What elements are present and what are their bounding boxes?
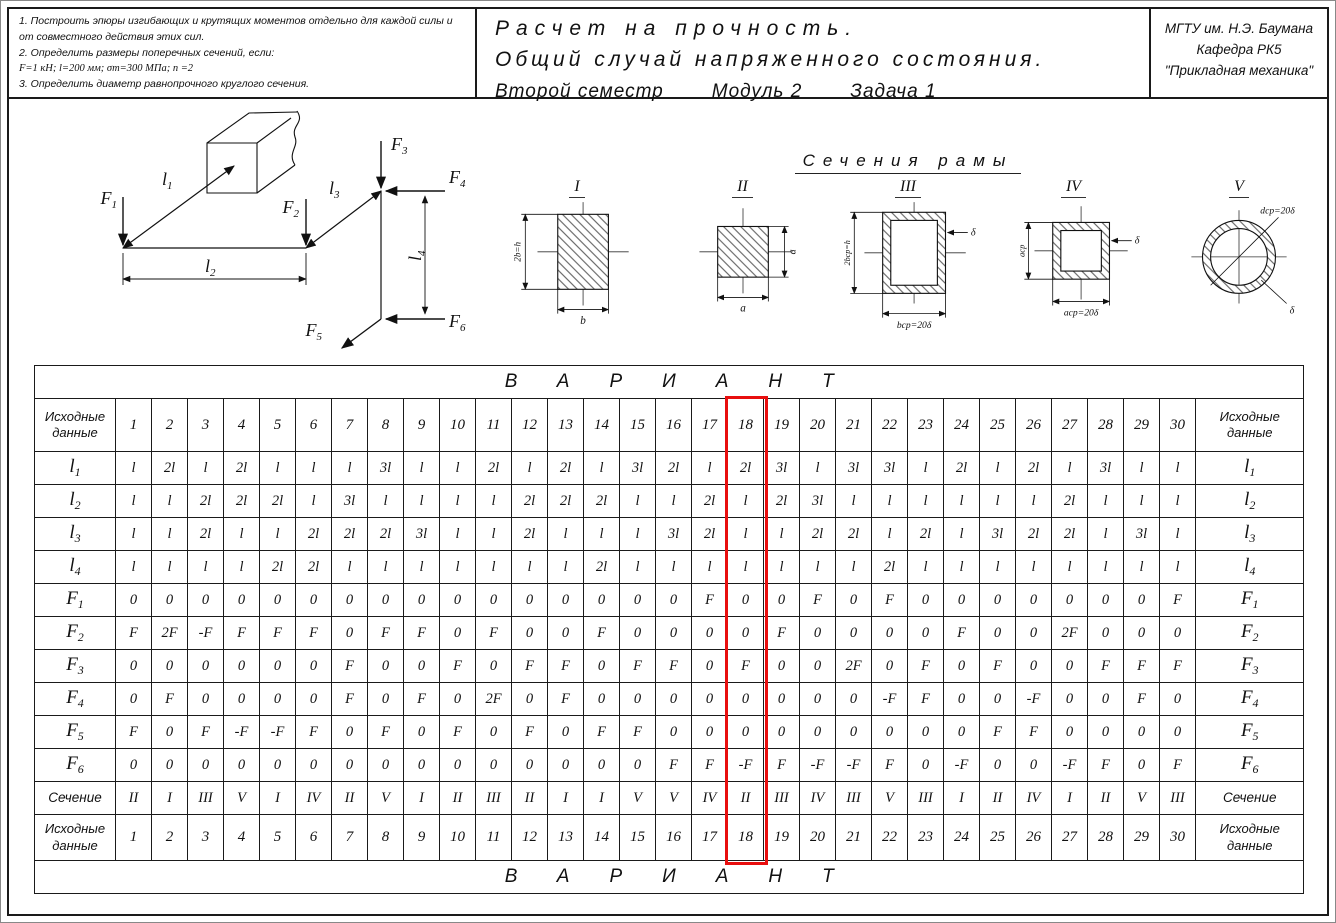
value-cell: II [440,782,476,815]
value-cell: 0 [548,749,584,782]
value-cell: F [1124,683,1160,716]
row-label-cell: l4 [1196,551,1304,584]
variant-number-cell: 20 [800,815,836,861]
value-cell: V [620,782,656,815]
dim-wall-5: δ [1290,306,1295,317]
value-cell: 0 [224,650,260,683]
value-cell: 2l [944,452,980,485]
value-cell: l [296,485,332,518]
value-cell: -F [728,749,764,782]
value-cell: I [1052,782,1088,815]
value-cell: IV [800,782,836,815]
value-cell: 0 [1160,683,1196,716]
row-label-cell: F4 [35,683,116,716]
value-cell: 2l [296,518,332,551]
value-cell: F [332,683,368,716]
value-cell: F [440,650,476,683]
value-cell: 2l [584,485,620,518]
row-label-cell: F1 [35,584,116,617]
row-label-cell: l2 [1196,485,1304,518]
dim-left-3: 2bср=h [843,240,852,265]
value-cell: F [440,716,476,749]
variant-table-wrap: ВАРИАНТИсходные данные123456789101112131… [34,365,1303,894]
value-cell: 0 [584,683,620,716]
value-cell: 2l [296,551,332,584]
value-cell: 0 [188,584,224,617]
value-cell: l [1160,518,1196,551]
variant-number-cell: 6 [296,815,332,861]
value-cell: 0 [296,584,332,617]
value-cell: 0 [800,683,836,716]
value-cell: l [404,452,440,485]
force-arrow-f5 [342,319,381,348]
value-cell: 2l [1052,485,1088,518]
value-cell: 3l [872,452,908,485]
value-cell: F [404,617,440,650]
value-cell: 0 [1052,716,1088,749]
subtitle-module: Модуль 2 [712,81,803,103]
dim-left-4: aср [1016,244,1026,257]
task-list: 1. Построить эпюры изгибающих и крутящих… [9,9,477,97]
value-cell: 0 [260,584,296,617]
value-cell: I [260,782,296,815]
variant-number-cell: 5 [260,815,296,861]
value-cell: 2l [764,485,800,518]
value-cell: 0 [260,749,296,782]
value-cell: F [692,584,728,617]
value-cell: l [332,452,368,485]
force-label-f2: F2 [282,197,300,220]
variant-number-cell: 17 [692,815,728,861]
data-row-F6: F6000000000000000FF-FF-F-FF0-F00-FF0FF6 [35,749,1304,782]
value-cell: F [1160,749,1196,782]
section-drawing-3: 2bср=h bср=20δ δ [832,200,984,332]
value-cell: 0 [512,749,548,782]
value-cell: F [1088,749,1124,782]
value-cell: 2F [152,617,188,650]
value-cell: IV [692,782,728,815]
value-cell: 0 [944,683,980,716]
variant-number-cell: 23 [908,815,944,861]
dim-wall-4: δ [1134,236,1139,247]
subtitle: Второй семестр Модуль 2 Задача 1 [495,81,1149,103]
value-cell: 0 [656,716,692,749]
value-cell: F [1160,584,1196,617]
value-cell: 0 [980,749,1016,782]
value-cell: l [548,518,584,551]
value-cell: 0 [980,617,1016,650]
value-cell: 3l [764,452,800,485]
value-cell: 0 [332,716,368,749]
value-cell: -F [836,749,872,782]
variant-number-cell: 19 [764,399,800,452]
row-label-cell: l1 [1196,452,1304,485]
variant-number-cell: 12 [512,399,548,452]
value-cell: 0 [1052,683,1088,716]
value-cell: 3l [620,452,656,485]
subtitle-semester: Второй семестр [495,81,664,103]
header-band: 1. Построить эпюры изгибающих и крутящих… [9,9,1327,99]
value-cell: 3l [368,452,404,485]
value-cell: F [872,749,908,782]
value-cell: IV [1016,782,1052,815]
value-cell: 0 [584,584,620,617]
value-cell: 0 [260,683,296,716]
length-label-l3: l3 [329,178,340,201]
value-cell: 0 [1124,584,1160,617]
value-cell: 0 [404,716,440,749]
value-cell: l [404,485,440,518]
value-cell: III [908,782,944,815]
section-numeral-5: V [1163,178,1315,198]
value-cell: 0 [728,683,764,716]
value-cell: 0 [980,584,1016,617]
value-cell: l [872,518,908,551]
value-cell: F [1088,650,1124,683]
tube-square-inner [1060,231,1101,272]
value-cell: l [1052,551,1088,584]
value-cell: 0 [224,683,260,716]
value-cell: 3l [656,518,692,551]
task-3: 3. Определить диаметр равнопрочного круг… [19,77,465,93]
row-label-cell: F2 [1196,617,1304,650]
value-cell: 0 [620,683,656,716]
variant-number-cell: 19 [764,815,800,861]
value-cell: l [116,551,152,584]
section-item-3: III 2bср=h bср=20δ [832,178,984,337]
variant-number-cell: 8 [368,815,404,861]
value-cell: 0 [800,617,836,650]
variant-number-cell: 2 [152,399,188,452]
variant-number-cell: 21 [836,815,872,861]
variant-number-cell: 4 [224,815,260,861]
variant-number-cell: 3 [188,399,224,452]
value-cell: l [692,452,728,485]
value-cell: III [764,782,800,815]
value-cell: V [224,782,260,815]
sections-block: Сечения рамы I 2b=h [501,151,1315,337]
value-cell: 0 [1088,617,1124,650]
value-cell: l [944,485,980,518]
value-cell: 0 [476,749,512,782]
value-cell: -F [188,617,224,650]
value-cell: F [656,749,692,782]
value-cell: l [656,551,692,584]
value-cell: 0 [908,716,944,749]
variant-number-cell: 7 [332,399,368,452]
value-cell: 0 [656,683,692,716]
variant-number-cell: 9 [404,399,440,452]
dim-wall-3: δ [971,228,976,239]
value-cell: l [440,551,476,584]
variant-number-cell: 30 [1160,399,1196,452]
value-cell: F [800,584,836,617]
value-cell: 2l [584,551,620,584]
value-cell: 0 [728,617,764,650]
worksheet-page: 1. Построить эпюры изгибающих и крутящих… [0,0,1336,923]
value-cell: F [116,716,152,749]
value-cell: 0 [764,584,800,617]
row-label-cell: F2 [35,617,116,650]
variant-number-cell: 1 [116,815,152,861]
value-cell: 0 [332,584,368,617]
variant-numbers-top: Исходные данные1234567891011121314151617… [35,399,1304,452]
value-cell: 0 [656,584,692,617]
value-cell: 0 [152,749,188,782]
value-cell: l [512,551,548,584]
value-cell: l [800,452,836,485]
value-cell: 0 [908,584,944,617]
value-cell: F [224,617,260,650]
tube-rect-inner [891,220,938,285]
value-cell: 3l [404,518,440,551]
value-cell: 3l [332,485,368,518]
value-cell: 0 [440,584,476,617]
value-cell: 0 [152,650,188,683]
value-cell: F [764,617,800,650]
row-label-cell: F1 [1196,584,1304,617]
variant-number-cell: 22 [872,399,908,452]
value-cell: 0 [764,683,800,716]
variant-number-cell: 28 [1088,815,1124,861]
value-cell: 0 [224,749,260,782]
corner-label-cell: Исходные данные [35,399,116,452]
variant-number-cell: 20 [800,399,836,452]
value-cell: 0 [692,617,728,650]
value-cell: 0 [728,584,764,617]
value-cell: II [116,782,152,815]
value-cell: F [692,749,728,782]
dim-bottom-1: b [580,315,586,327]
value-cell: l [152,551,188,584]
value-cell: l [1124,452,1160,485]
value-cell: II [728,782,764,815]
value-cell: II [332,782,368,815]
value-cell: l [1160,551,1196,584]
value-cell: 0 [1124,617,1160,650]
value-cell: 0 [764,716,800,749]
value-cell: 0 [800,650,836,683]
value-cell: l [1088,551,1124,584]
value-cell: 0 [1160,617,1196,650]
value-cell: 2l [260,485,296,518]
value-cell: 0 [476,650,512,683]
value-cell: l [764,518,800,551]
value-cell: 0 [476,716,512,749]
row-label-cell: F6 [1196,749,1304,782]
value-cell: 0 [872,617,908,650]
variant-number-cell: 27 [1052,815,1088,861]
variant-number-cell: 26 [1016,815,1052,861]
variant-number-cell: 2 [152,815,188,861]
value-cell: 2l [692,518,728,551]
variant-number-cell: 16 [656,815,692,861]
variant-number-cell: 14 [584,399,620,452]
value-cell: l [692,551,728,584]
variant-number-cell: 28 [1088,399,1124,452]
value-cell: F [584,617,620,650]
title-block: Расчет на прочность. Общий случай напряж… [477,9,1151,97]
value-cell: 0 [1088,716,1124,749]
length-label-l2: l2 [205,256,216,279]
value-cell: l [800,551,836,584]
title-line-1: Расчет на прочность. [495,17,1149,41]
value-cell: V [656,782,692,815]
value-cell: 2l [1016,452,1052,485]
value-cell: F [368,617,404,650]
value-cell: 2l [332,518,368,551]
value-cell: F [152,683,188,716]
value-cell: -F [800,749,836,782]
dim-bottom-3: bср=20δ [897,320,932,331]
value-cell: F [764,749,800,782]
variant-number-cell: 9 [404,815,440,861]
value-cell: l [872,485,908,518]
value-cell: 0 [584,650,620,683]
value-cell: l [908,485,944,518]
value-cell: 0 [188,749,224,782]
value-cell: 0 [620,584,656,617]
section-drawing-2: a a [667,200,819,332]
value-cell: 0 [908,749,944,782]
variant-number-cell: 13 [548,399,584,452]
variant-number-cell: 14 [584,815,620,861]
sections-title: Сечения рамы [501,151,1315,174]
value-cell: 0 [152,716,188,749]
org-university: МГТУ им. Н.Э. Баумана [1151,19,1327,40]
value-cell: F [512,650,548,683]
org-department: Кафедра РК5 [1151,40,1327,61]
value-cell: F [1016,716,1052,749]
value-cell: l [980,551,1016,584]
value-cell: l [476,485,512,518]
variant-numbers-bottom: Исходные данные1234567891011121314151617… [35,815,1304,861]
value-cell: 0 [620,749,656,782]
data-row-l4: l4llll2l2llllllll2llllllll2llllllllll4 [35,551,1304,584]
value-cell: l [620,518,656,551]
value-cell: III [476,782,512,815]
section-item-4: IV aср aср=20δ [998,178,1150,337]
value-cell: 0 [836,716,872,749]
variant-number-cell: 30 [1160,815,1196,861]
variant-number-cell: 3 [188,815,224,861]
value-cell: 0 [692,650,728,683]
variant-number-cell: 11 [476,815,512,861]
value-cell: l [440,452,476,485]
value-cell: F [944,617,980,650]
variant-number-cell: 13 [548,815,584,861]
fixed-support-cube [207,111,300,193]
value-cell: F [908,650,944,683]
value-cell: 0 [512,584,548,617]
data-row-l1: l1l2ll2llll3lll2ll2ll3l2ll2l3ll3l3ll2ll2… [35,452,1304,485]
wall-leader-line [1261,280,1286,303]
value-cell: 0 [512,617,548,650]
value-cell: l [1124,485,1160,518]
value-cell: l [152,518,188,551]
value-cell: 2l [512,518,548,551]
value-cell: l [188,551,224,584]
task-1: 1. Построить эпюры изгибающих и крутящих… [19,14,465,46]
value-cell: F [476,617,512,650]
value-cell: 2l [152,452,188,485]
value-cell: 0 [944,650,980,683]
length-label-l4: l4 [405,250,428,261]
value-cell: I [548,782,584,815]
value-cell: 2l [872,551,908,584]
value-cell: l [332,551,368,584]
variant-number-cell: 10 [440,399,476,452]
row-label-cell: Сечение [1196,782,1304,815]
value-cell: F [116,617,152,650]
value-cell: 2l [548,485,584,518]
value-cell: F [908,683,944,716]
value-cell: -F [1052,749,1088,782]
value-cell: l [944,518,980,551]
force-label-f6: F6 [448,311,466,334]
value-cell: F [512,716,548,749]
section-numeral-4: IV [998,178,1150,198]
value-cell: l [836,485,872,518]
value-cell: F [620,716,656,749]
value-cell: 0 [800,716,836,749]
value-cell: 3l [980,518,1016,551]
value-cell: 0 [980,683,1016,716]
value-cell: 0 [620,617,656,650]
value-cell: l [728,485,764,518]
variant-band-bottom: ВАРИАНТ [35,861,1304,894]
value-cell: F [296,617,332,650]
variant-number-cell: 7 [332,815,368,861]
value-cell: 2l [836,518,872,551]
force-label-f1: F1 [100,188,118,211]
value-cell: 0 [908,617,944,650]
value-cell: I [404,782,440,815]
data-row-F4: F40F0000F0F02F0F00000000-FF00-F00F0F4 [35,683,1304,716]
value-cell: l [1016,485,1052,518]
value-cell: 2F [836,650,872,683]
value-cell: 2l [548,452,584,485]
value-cell: 0 [296,749,332,782]
value-cell: 0 [1160,716,1196,749]
value-cell: F [368,716,404,749]
value-cell: l [944,551,980,584]
row-label-cell: l3 [1196,518,1304,551]
value-cell: l [116,518,152,551]
data-row-l2: l2ll2l2l2ll3lllll2l2l2lll2ll2l3lllllll2l… [35,485,1304,518]
value-cell: l [584,452,620,485]
value-cell: F [728,650,764,683]
value-cell: 2l [224,452,260,485]
value-cell: 0 [152,584,188,617]
value-cell: 0 [296,650,332,683]
variant-table: ВАРИАНТИсходные данные123456789101112131… [34,365,1304,894]
value-cell: F [1160,650,1196,683]
value-cell: l [440,518,476,551]
variant-number-cell: 25 [980,399,1016,452]
value-cell: 0 [656,617,692,650]
value-cell: I [584,782,620,815]
value-cell: 0 [584,749,620,782]
value-cell: 0 [368,584,404,617]
title-line-2: Общий случай напряженного состояния. [495,48,1149,72]
value-cell: 0 [404,584,440,617]
sections-row: I 2b=h b [501,178,1315,337]
variant-number-cell: 26 [1016,399,1052,452]
value-cell: l [1160,485,1196,518]
value-cell: 2F [1052,617,1088,650]
variant-band-title: ВАРИАНТ [35,861,1304,894]
